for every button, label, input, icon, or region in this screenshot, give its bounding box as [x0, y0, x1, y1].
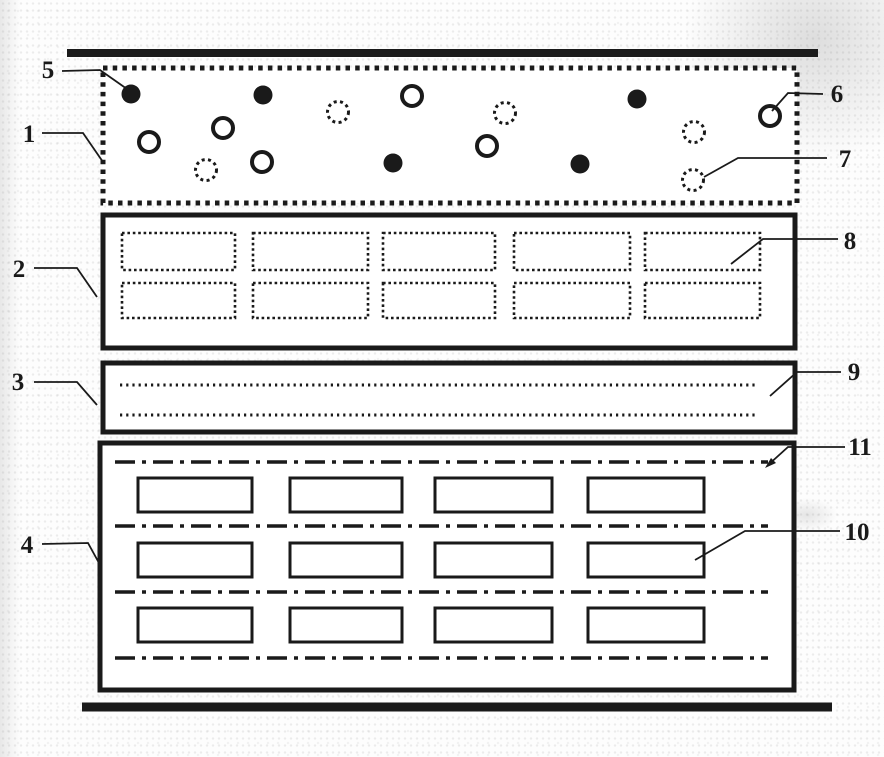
- filled-particle: [384, 154, 403, 173]
- dotted-slot: [514, 283, 630, 318]
- solid-slot: [138, 478, 252, 512]
- filled-particle: [571, 155, 590, 174]
- ref-label-8: 8: [844, 228, 857, 255]
- dotted-slot: [645, 283, 760, 318]
- layer-3-outline: [103, 363, 795, 432]
- open-particle: [213, 118, 233, 138]
- leader-line-1: [42, 133, 103, 162]
- dotted-slot: [253, 283, 368, 318]
- layer-1-outline: [103, 68, 797, 203]
- ref-label-7: 7: [839, 146, 852, 173]
- dotted-slot: [253, 233, 368, 270]
- dotted-slot: [383, 233, 495, 270]
- open-particle: [477, 136, 497, 156]
- solid-slot: [588, 608, 704, 642]
- dotted-slot: [645, 233, 760, 270]
- leader-line-4: [42, 543, 99, 563]
- leader-line-3: [34, 382, 97, 405]
- solid-slot: [435, 478, 552, 512]
- dotted-slot: [514, 233, 630, 270]
- ref-label-1: 1: [23, 121, 36, 148]
- dotted-slot: [122, 233, 235, 270]
- ref-label-3: 3: [12, 369, 25, 396]
- solid-slot: [290, 478, 402, 512]
- filled-particle: [628, 90, 647, 109]
- dotted-slot: [383, 283, 495, 318]
- solid-slot: [435, 608, 552, 642]
- solid-slot: [138, 543, 252, 577]
- open-particle: [252, 152, 272, 172]
- ref-label-2: 2: [13, 256, 26, 283]
- solid-slot: [290, 543, 402, 577]
- solid-slot: [290, 608, 402, 642]
- ref-label-10: 10: [845, 519, 870, 546]
- ref-label-6: 6: [831, 81, 844, 108]
- solid-slot: [435, 543, 552, 577]
- ref-label-11: 11: [848, 434, 872, 461]
- open-particle: [139, 132, 159, 152]
- layered-structure-diagram: 1234567891011: [0, 0, 884, 757]
- solid-slot: [588, 478, 704, 512]
- solid-slot: [588, 543, 704, 577]
- ref-label-5: 5: [42, 57, 55, 84]
- patent-figure-canvas: 1234567891011: [0, 0, 884, 757]
- ref-label-4: 4: [21, 532, 34, 559]
- ref-label-9: 9: [848, 359, 861, 386]
- filled-particle: [254, 86, 273, 105]
- open-particle: [760, 106, 780, 126]
- dotted-slot: [122, 283, 235, 318]
- open-particle: [402, 86, 422, 106]
- leader-line-2: [34, 268, 97, 297]
- solid-slot: [138, 608, 252, 642]
